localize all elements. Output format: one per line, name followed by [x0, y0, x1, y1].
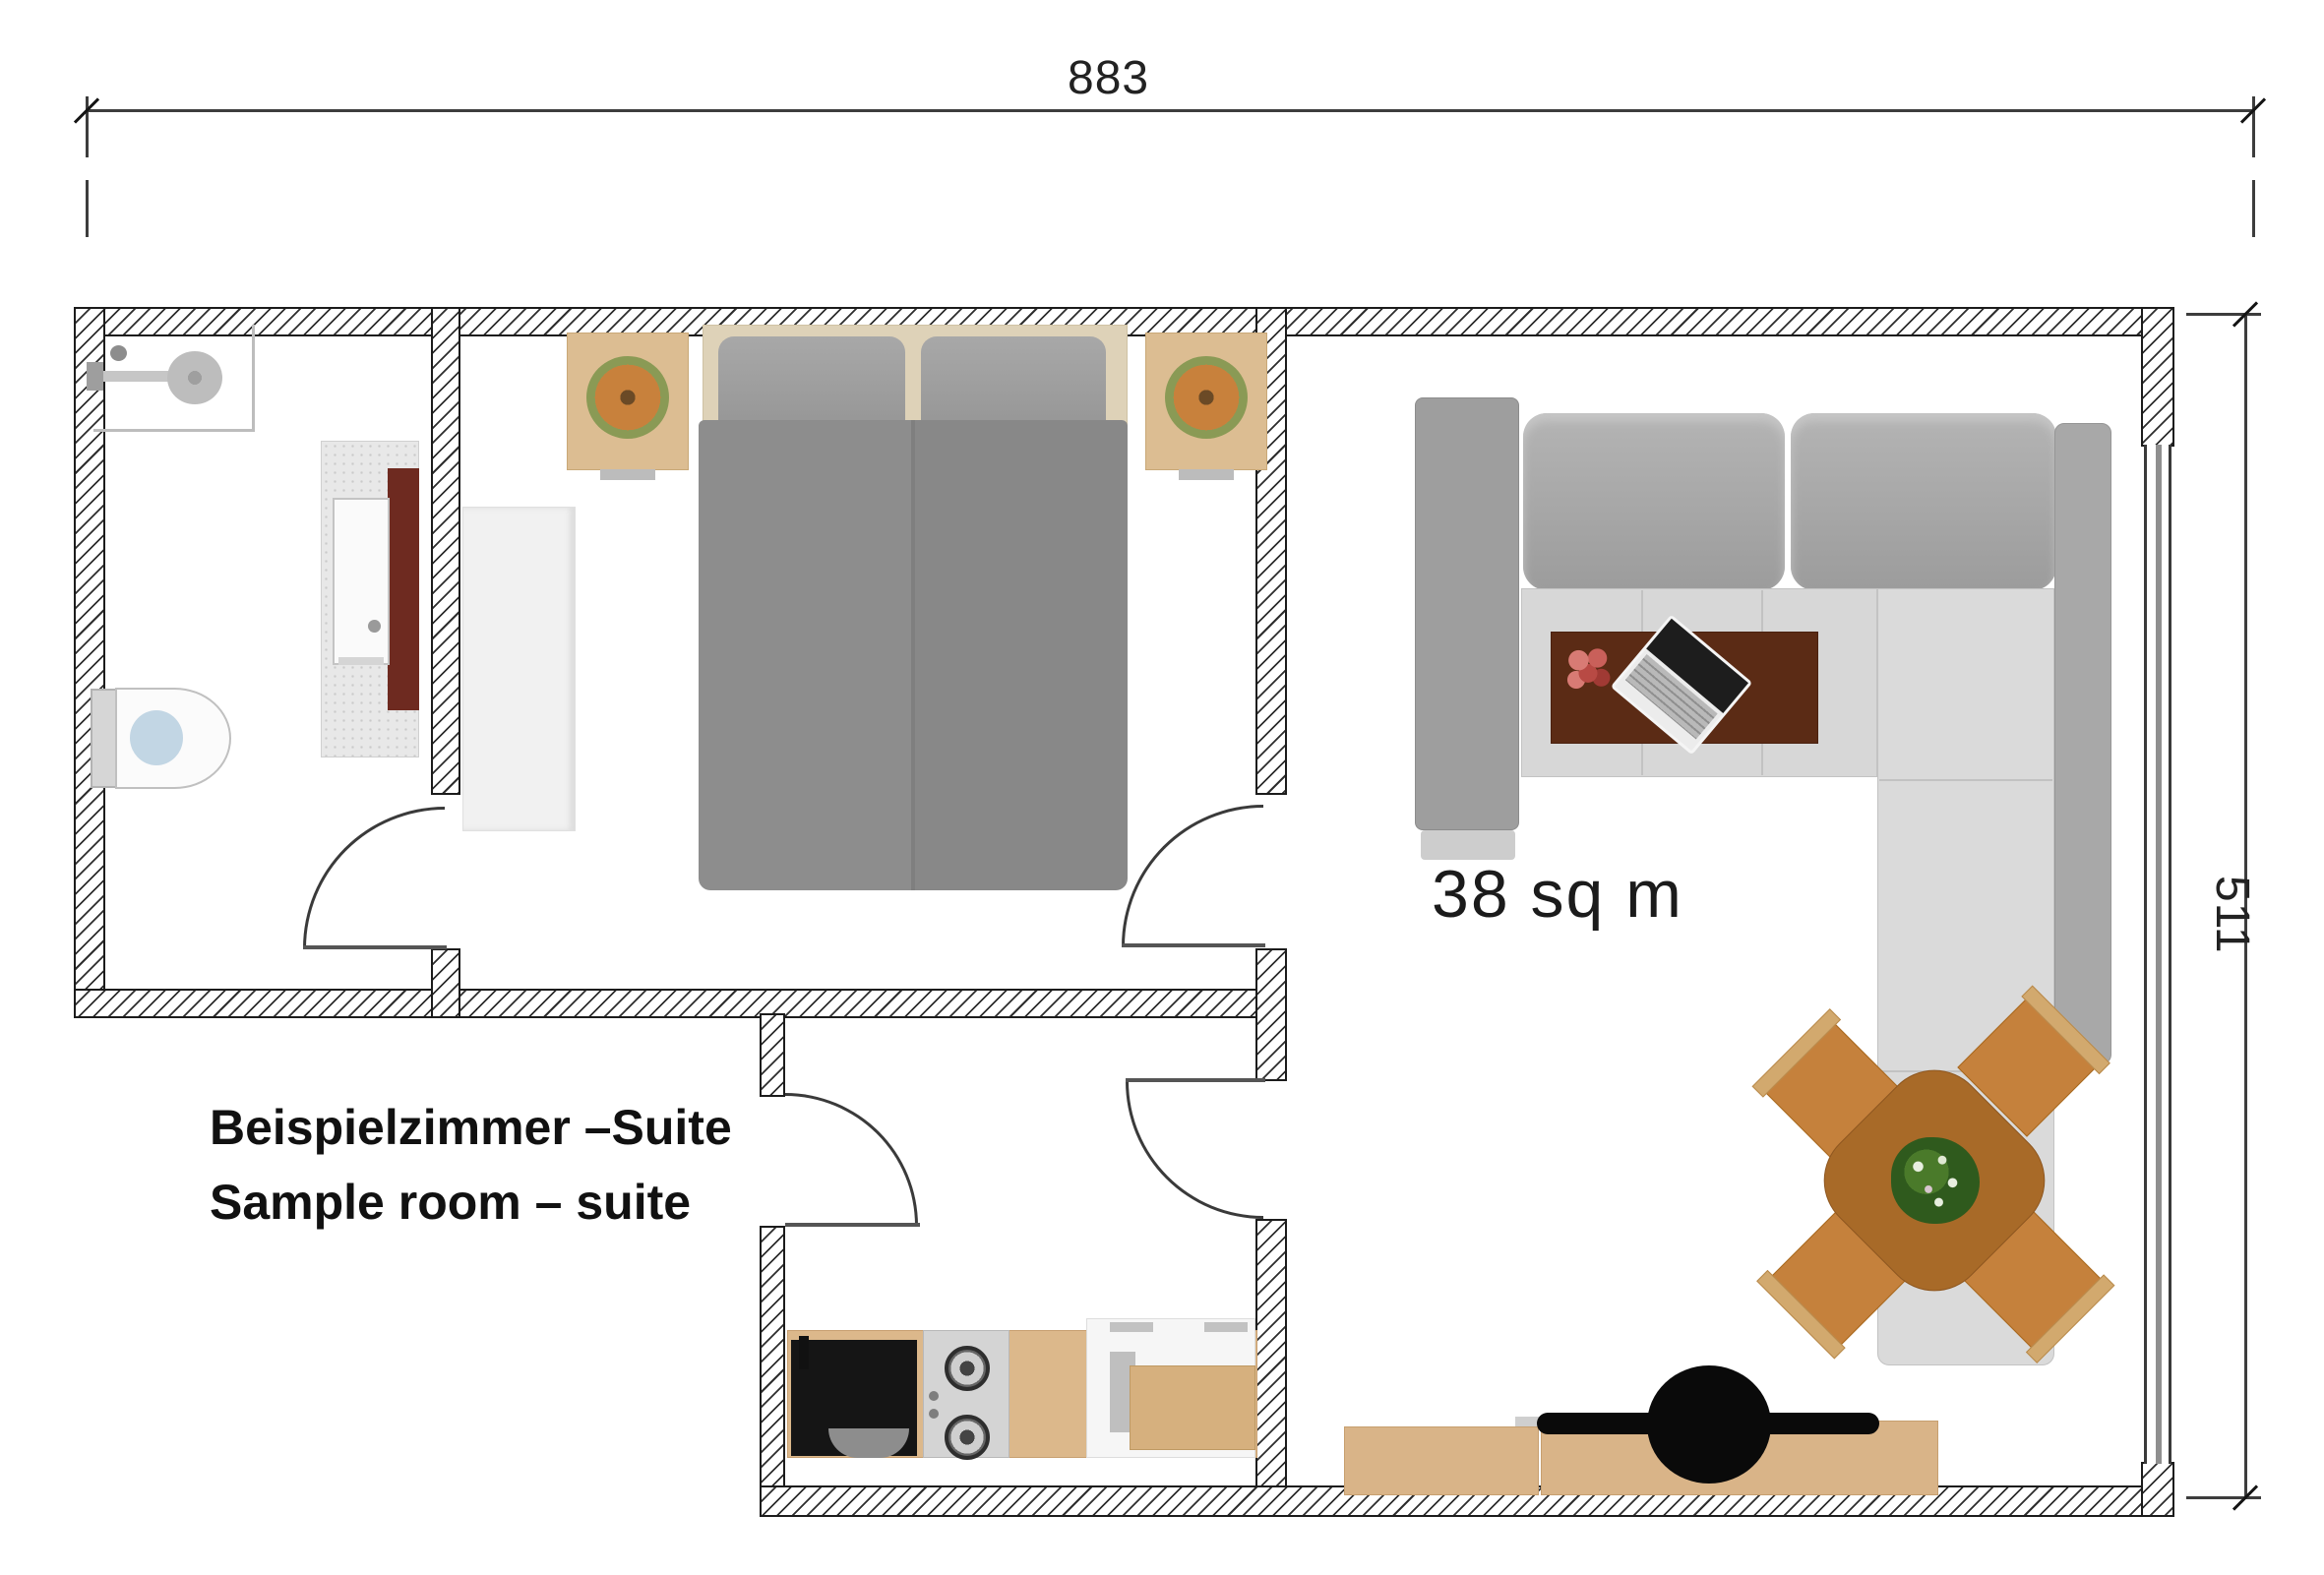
coffee-table-flowers — [1564, 647, 1612, 691]
vanity-maroon-panel — [388, 468, 419, 710]
floor-plan-canvas: 883 511 — [0, 0, 2324, 1575]
cooktop-burner-2 — [945, 1415, 990, 1460]
cooktop-knob — [929, 1409, 939, 1419]
sofa-armrest-left — [1415, 397, 1519, 830]
vanity-sink-shelf — [338, 657, 384, 665]
dimension-depth-ext-bottom — [2186, 1496, 2261, 1499]
wall-bedroom-living-middle — [1255, 948, 1287, 1081]
dining-table-plant-speckles — [1901, 1147, 1970, 1212]
dimension-depth-ext-top — [2186, 313, 2261, 316]
nightstand-right-base — [1179, 469, 1234, 480]
vanity-faucet — [368, 620, 381, 633]
bedroom-door-arc — [1122, 805, 1263, 946]
wall-bathroom-bedroom-lower — [431, 948, 460, 1018]
cooktop-knob — [929, 1391, 939, 1401]
dimension-width-line — [87, 109, 2254, 112]
wall-right-bottom-block — [2141, 1462, 2174, 1517]
entrance-door-arc — [785, 1093, 918, 1226]
shower-control-dot — [110, 345, 127, 361]
sofa-back-cushion-left — [1523, 413, 1785, 590]
wall-bathroom-bedroom-upper — [431, 307, 460, 795]
wall-kitchen-living-lower — [1255, 1219, 1287, 1515]
fridge-handle — [1204, 1322, 1248, 1332]
sofa-back-panel-right — [2054, 423, 2111, 1064]
toilet-tank — [91, 689, 117, 788]
bathroom-door-leaf — [303, 945, 447, 949]
sofa-chaise-seam — [1879, 779, 2052, 781]
chair-backrest — [1752, 1008, 1842, 1098]
plan-title: Beispielzimmer –Suite Sample room – suit… — [210, 1090, 732, 1240]
dimension-depth-label: 511 — [2205, 876, 2259, 954]
dimension-width-ext-right2 — [2252, 180, 2255, 237]
dimension-width-label: 883 — [1068, 51, 1149, 105]
wall-left — [74, 307, 105, 1018]
entrance-door-leaf — [785, 1223, 920, 1227]
plan-title-line1: Beispielzimmer –Suite — [210, 1090, 732, 1165]
desk-chair-seat — [1647, 1365, 1771, 1484]
wall-bottom-left — [74, 989, 1287, 1018]
window-right-wall — [2144, 445, 2171, 1464]
kitchen-side-table — [1130, 1365, 1255, 1450]
kitchen-living-door-arc — [1126, 1081, 1263, 1219]
desk-left-segment — [1344, 1426, 1539, 1495]
kitchen-sink-faucet — [799, 1336, 809, 1369]
wardrobe — [462, 507, 576, 831]
plan-title-line2: Sample room – suite — [210, 1165, 732, 1240]
chair-backrest — [2026, 1274, 2115, 1363]
toilet-water — [130, 710, 183, 765]
wall-right-top-block — [2141, 307, 2174, 447]
wall-kitchen-left-upper — [760, 1013, 785, 1097]
shower-head — [167, 351, 222, 404]
bed-duvet — [699, 420, 1128, 890]
plant-left — [586, 356, 669, 439]
nightstand-left-base — [600, 469, 655, 480]
fridge-handle — [1110, 1322, 1153, 1332]
bathroom-door-arc — [303, 807, 445, 948]
wall-kitchen-left-lower — [760, 1226, 785, 1515]
sofa-back-cushion-right — [1791, 413, 2056, 590]
dimension-width-ext-left2 — [86, 180, 89, 237]
chair-backrest — [1756, 1270, 1846, 1360]
kitchen-living-door-leaf — [1126, 1078, 1265, 1082]
shower-enclosure-line-bottom — [93, 429, 255, 432]
shower-arm-mount — [87, 362, 103, 391]
area-label: 38 sq m — [1432, 856, 1683, 933]
shower-enclosure-line-right — [252, 325, 255, 432]
vanity-sink — [333, 498, 390, 665]
bedroom-door-leaf — [1122, 943, 1265, 947]
plant-right — [1165, 356, 1248, 439]
cooktop-burner-1 — [945, 1346, 990, 1391]
